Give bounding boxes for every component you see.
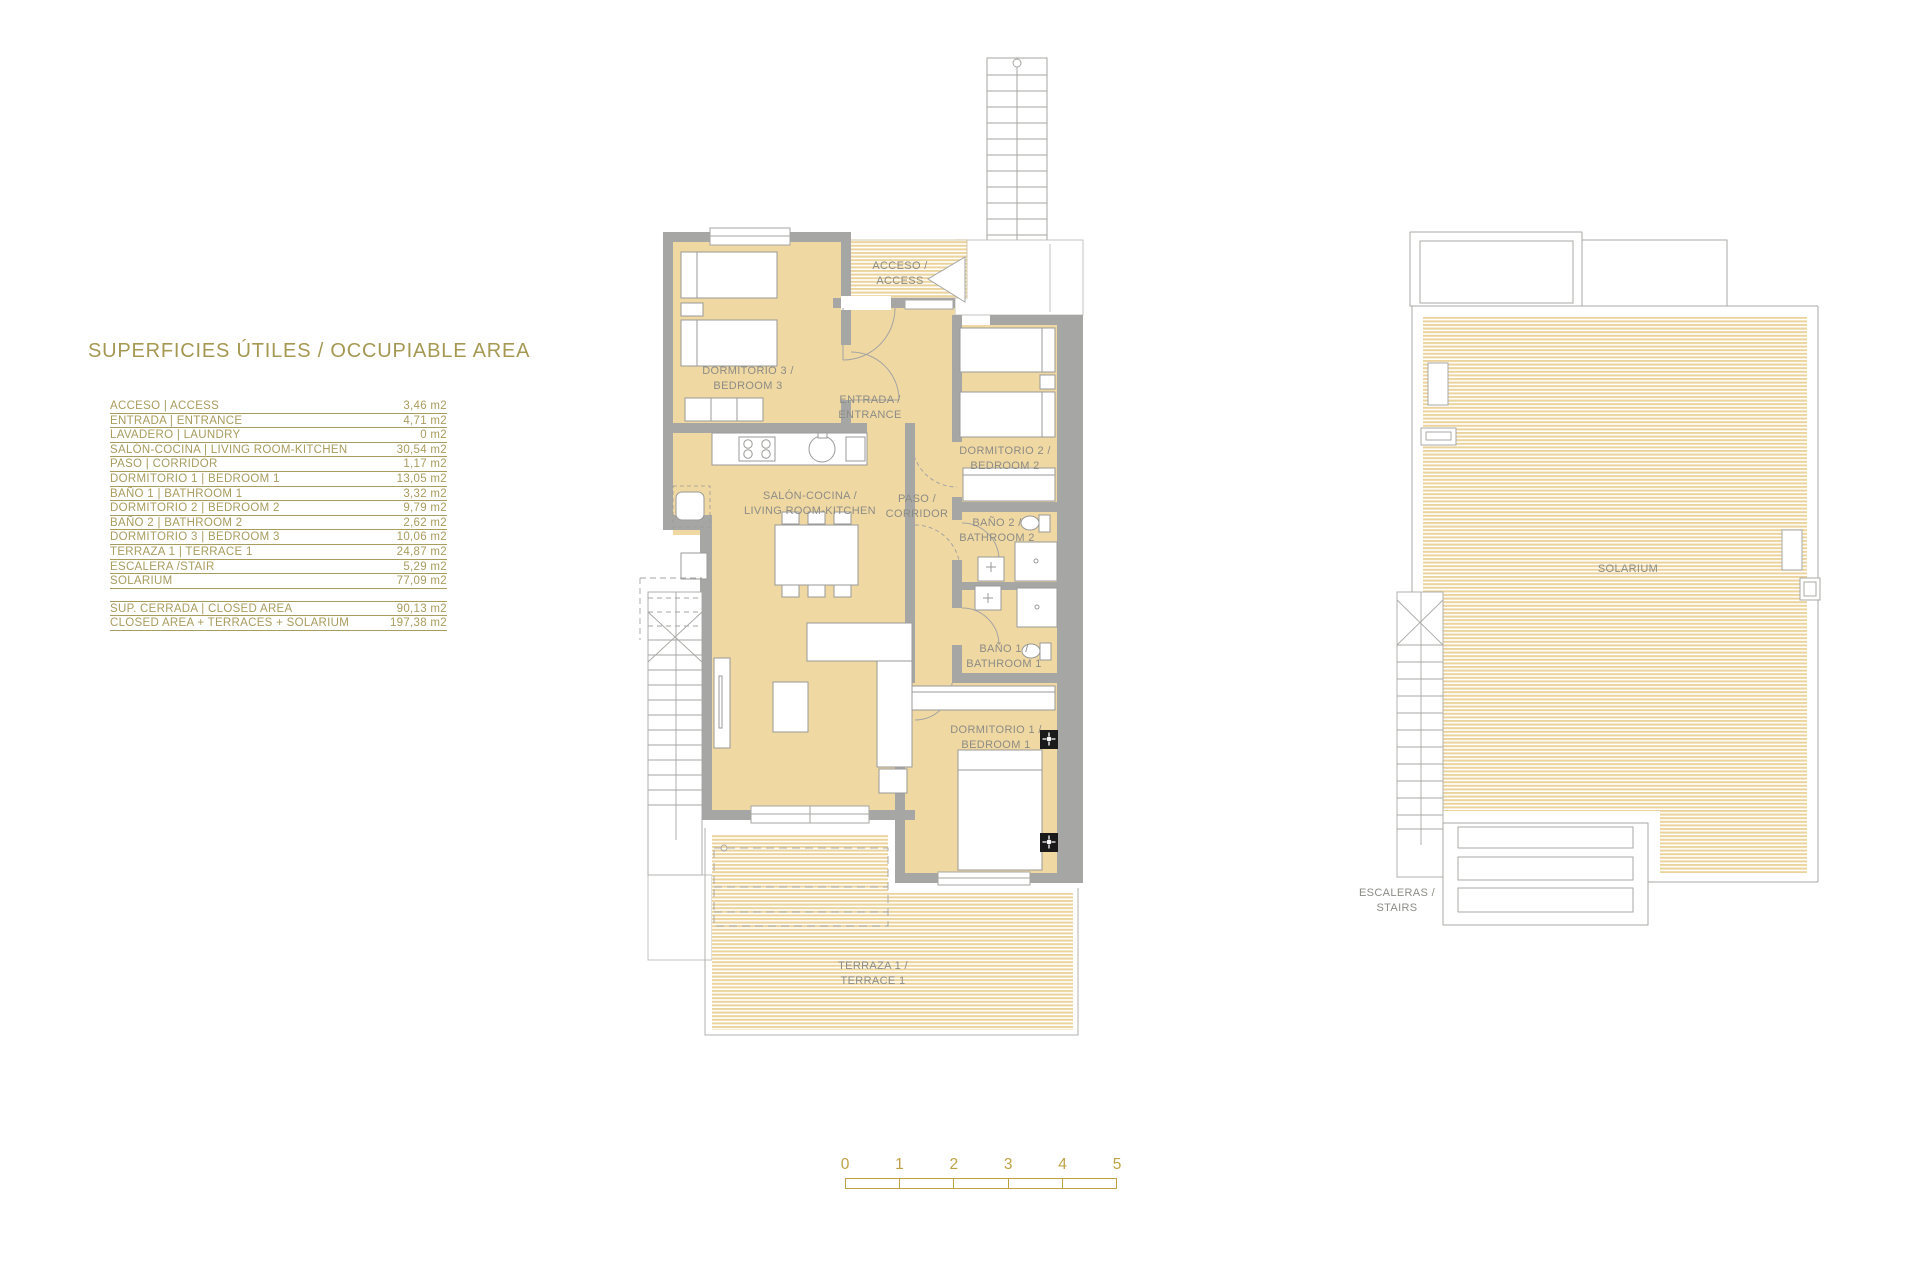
area-row: ACCESO | ACCESS3,46 m2 xyxy=(110,399,447,414)
main-floor-plan xyxy=(640,58,1083,1035)
bed-icon xyxy=(681,320,777,366)
bed-icon xyxy=(681,252,777,298)
room-label-entrance: ENTRADA / ENTRANCE xyxy=(838,393,901,422)
main-door-opening xyxy=(841,296,891,310)
room-label-bedroom1: DORMITORIO 1 / BEDROOM 1 xyxy=(950,723,1041,752)
entry-porch xyxy=(955,240,1083,315)
roof-box xyxy=(1410,232,1582,306)
solarium-stair-icon xyxy=(1397,592,1443,877)
scale-bar-rect xyxy=(845,1178,1117,1189)
solarium-plan xyxy=(1397,232,1820,925)
room-label-stairs: ESCALERAS / STAIRS xyxy=(1359,886,1435,915)
scale-bar: 0 1 2 3 4 5 xyxy=(845,1156,1117,1189)
ac-unit-icon xyxy=(1040,833,1058,852)
room-label-bathroom1: BAÑO 1 / BATHROOM 1 xyxy=(966,642,1041,671)
room-label-solarium: SOLARIUM xyxy=(1598,562,1658,577)
shower-icon xyxy=(1015,542,1057,581)
bed-icon xyxy=(960,392,1055,437)
cooktop-icon xyxy=(739,437,775,461)
room-label-acceso: ACCESO / ACCESS xyxy=(872,259,927,288)
sofa-icon xyxy=(807,623,912,661)
areas-panel: SUPERFICIES ÚTILES / OCCUPIABLE AREA ACC… xyxy=(88,340,450,631)
room-label-terrace1: TERRAZA 1 / TERRACE 1 xyxy=(838,959,908,988)
page-title: SUPERFICIES ÚTILES / OCCUPIABLE AREA xyxy=(88,340,450,363)
floorplan-sheet: SUPERFICIES ÚTILES / OCCUPIABLE AREA ACC… xyxy=(0,0,1920,1280)
area-row: SALÓN-COCINA | LIVING ROOM-KITCHEN30,54 … xyxy=(110,443,447,458)
area-row: DORMITORIO 2 | BEDROOM 29,79 m2 xyxy=(110,501,447,516)
area-row: DORMITORIO 1 | BEDROOM 113,05 m2 xyxy=(110,472,447,487)
scale-tick-labels: 0 1 2 3 4 5 xyxy=(845,1156,1117,1175)
bedroom2-furniture xyxy=(960,328,1055,501)
area-row: BAÑO 2 | BATHROOM 22,62 m2 xyxy=(110,516,447,531)
room-label-bedroom2: DORMITORIO 2 / BEDROOM 2 xyxy=(959,444,1050,473)
bed-icon xyxy=(958,750,1042,870)
area-table: ACCESO | ACCESS3,46 m2 ENTRADA | ENTRANC… xyxy=(110,399,447,631)
closet-icon xyxy=(685,398,763,421)
area-row: TERRAZA 1 | TERRACE 124,87 m2 xyxy=(110,545,447,560)
area-row: PASO | CORRIDOR1,17 m2 xyxy=(110,457,447,472)
shower-icon xyxy=(1017,588,1057,627)
bed-icon xyxy=(960,328,1055,372)
room-label-corridor: PASO / CORRIDOR xyxy=(886,492,949,521)
area-row: SOLARIUM77,09 m2 xyxy=(110,574,447,589)
area-row: DORMITORIO 3 | BEDROOM 310,06 m2 xyxy=(110,530,447,545)
room-label-bathroom2: BAÑO 2 / BATHROOM 2 xyxy=(959,516,1034,545)
kitchen-sink-icon xyxy=(809,436,835,462)
area-row: ESCALERA /STAIR5,29 m2 xyxy=(110,560,447,575)
floorplan-drawing xyxy=(0,0,1920,1280)
ac-unit-icon xyxy=(1040,730,1058,749)
solarium-deck xyxy=(1423,317,1807,873)
area-row: LAVADERO | LAUNDRY0 m2 xyxy=(110,428,447,443)
table-separator xyxy=(110,589,447,602)
area-row: BAÑO 1 | BATHROOM 13,32 m2 xyxy=(110,487,447,502)
side-exterior-stair-icon xyxy=(640,578,712,960)
coffee-table-icon xyxy=(773,682,808,732)
roof-box xyxy=(1582,240,1727,306)
stair-louvers xyxy=(1443,823,1648,925)
area-row: ENTRADA | ENTRANCE4,71 m2 xyxy=(110,414,447,429)
closet-icon xyxy=(912,686,1055,710)
room-label-bedroom3: DORMITORIO 3 / BEDROOM 3 xyxy=(702,364,793,393)
area-summary-row: SUP. CERRADA | CLOSED AREA90,13 m2 xyxy=(110,602,447,617)
laundry-sink-icon xyxy=(676,492,704,520)
area-summary-row: CLOSED AREA + TERRACES + SOLARIUM197,38 … xyxy=(110,616,447,631)
room-label-living-kitchen: SALÓN-COCINA / LIVING ROOM-KITCHEN xyxy=(744,489,876,518)
dining-table-icon xyxy=(775,525,858,585)
